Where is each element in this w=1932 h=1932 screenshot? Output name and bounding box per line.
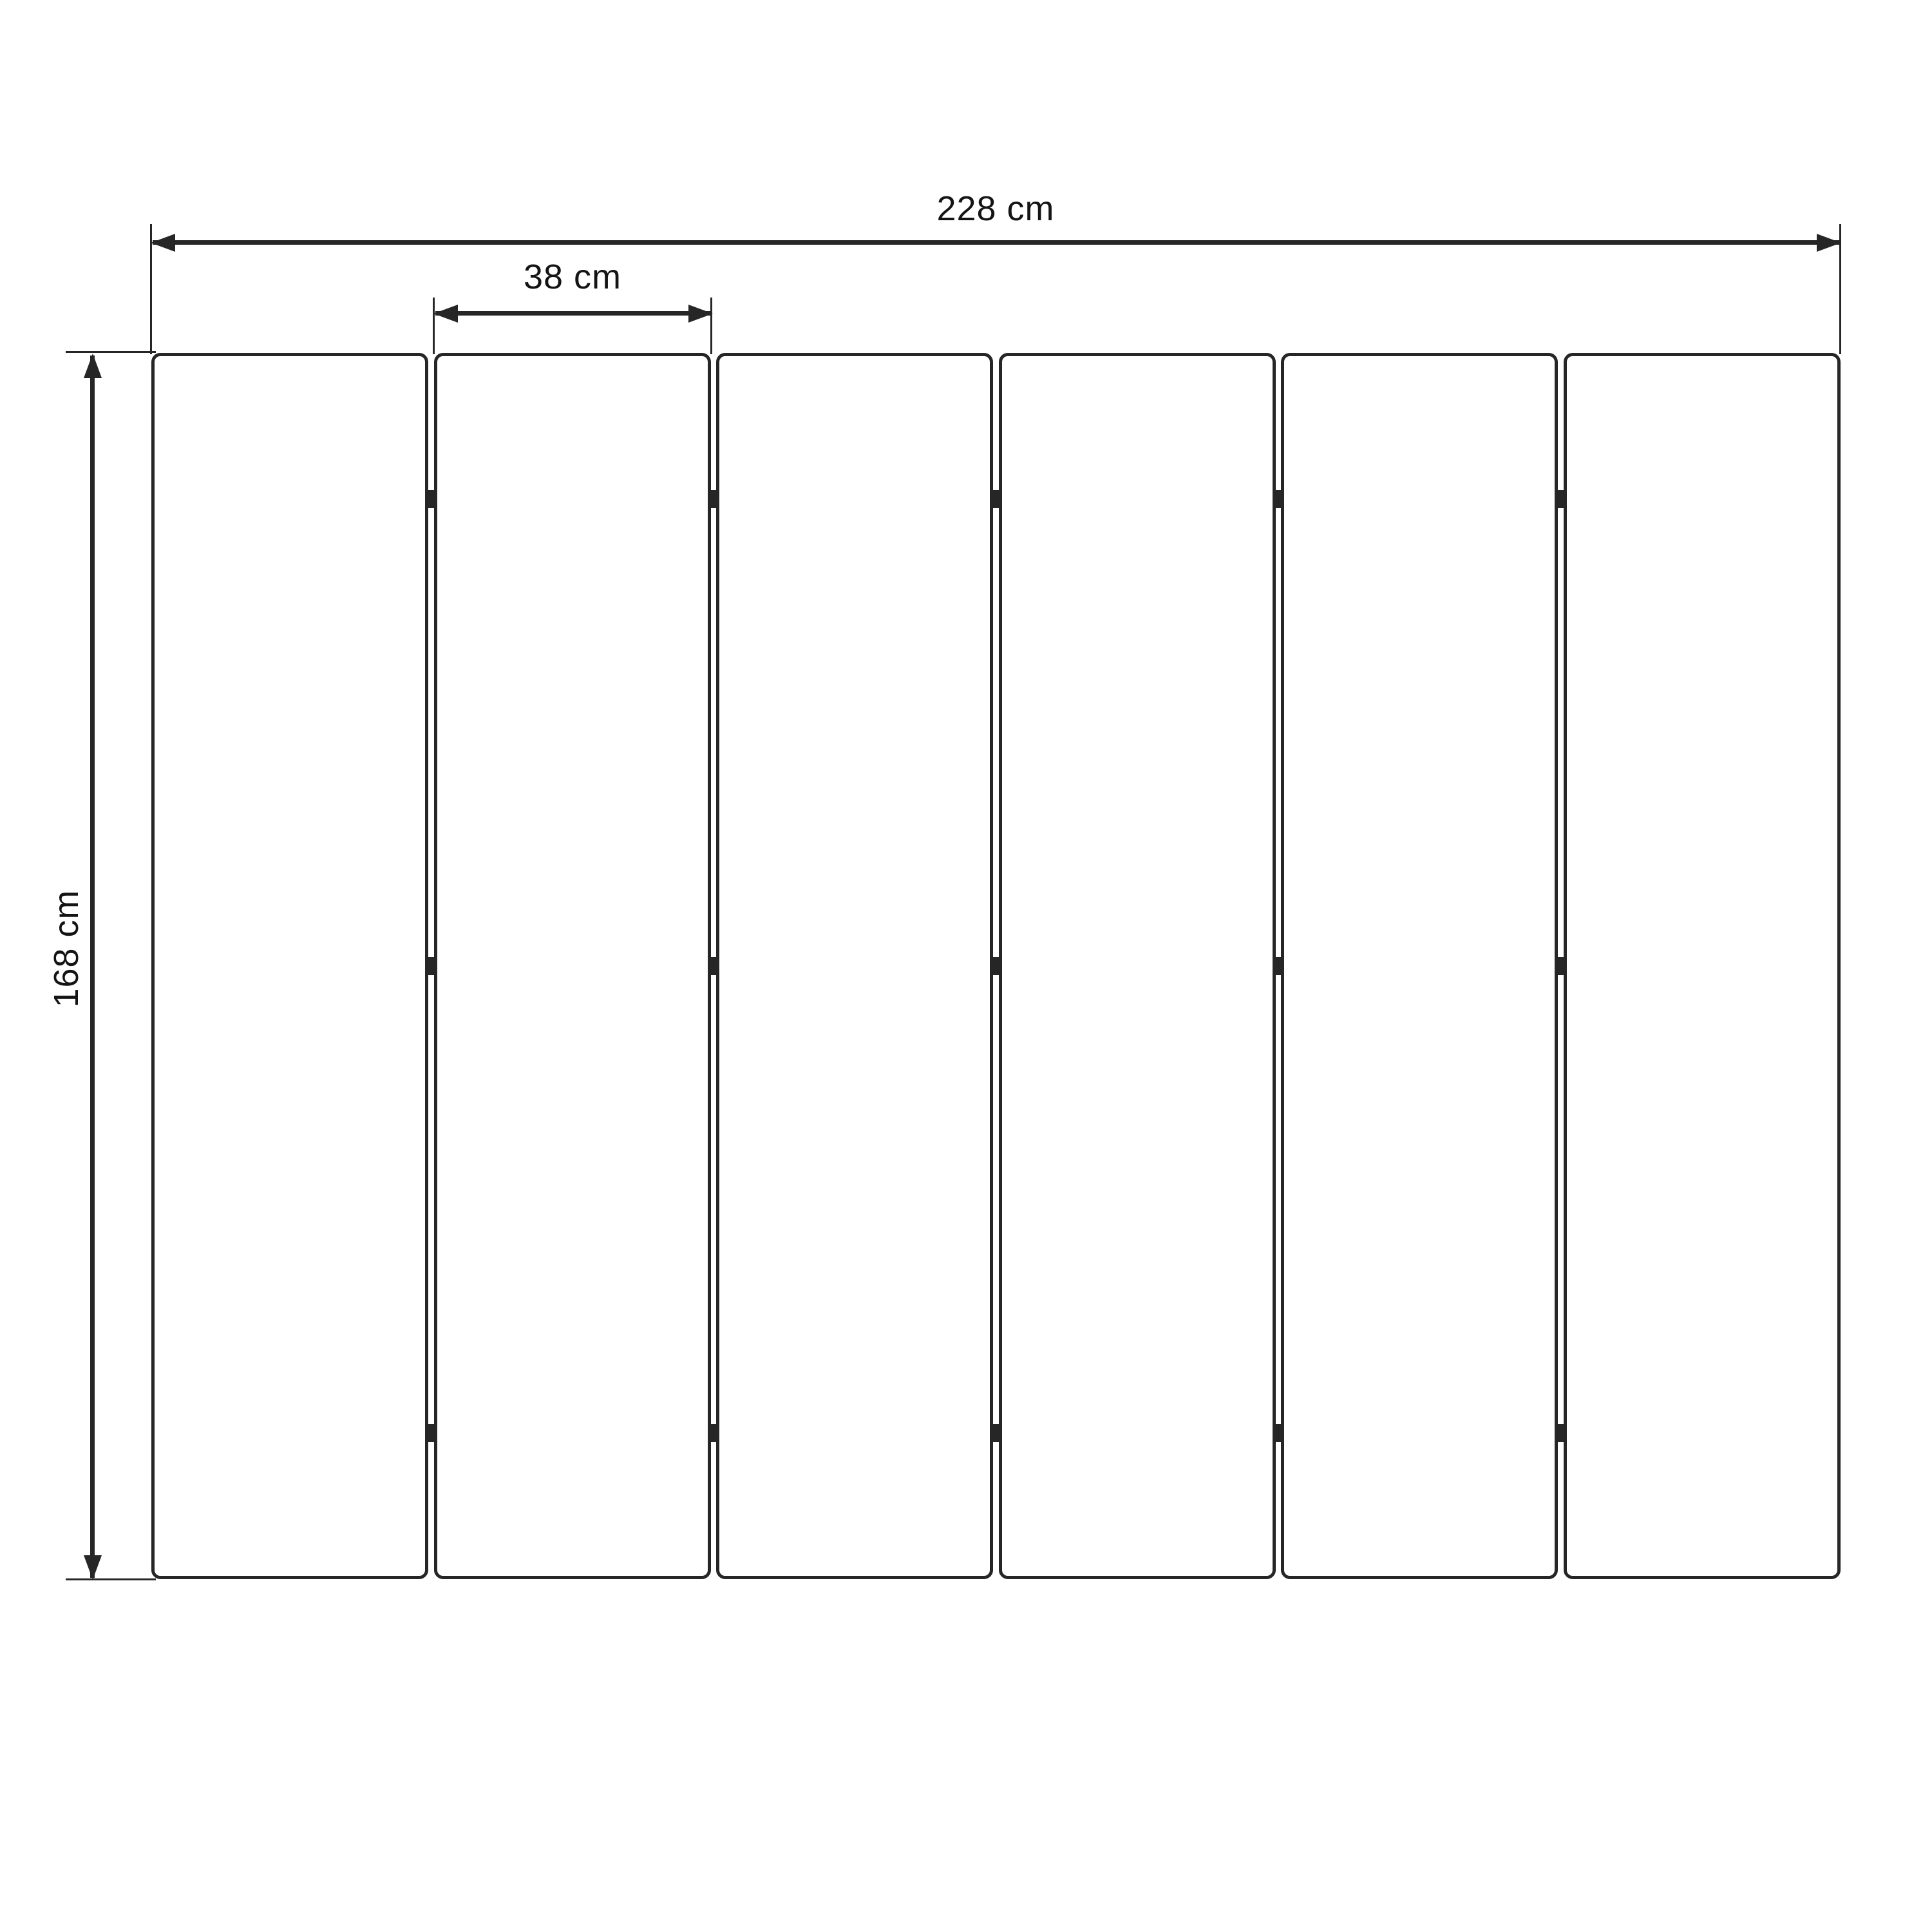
panel bbox=[151, 353, 428, 1579]
hinge-mark bbox=[991, 490, 1001, 508]
hinge-mark bbox=[708, 957, 719, 975]
panel bbox=[434, 353, 711, 1579]
hinge-mark bbox=[1556, 1424, 1566, 1442]
height-extension-line-top bbox=[66, 351, 156, 353]
hinge-mark bbox=[991, 1424, 1001, 1442]
height-extension-line-bottom bbox=[66, 1578, 156, 1580]
panel bbox=[1281, 353, 1558, 1579]
arrow-left-icon bbox=[433, 305, 458, 323]
hinge-mark bbox=[1273, 1424, 1283, 1442]
hinge-mark bbox=[1273, 957, 1283, 975]
panel bbox=[716, 353, 993, 1579]
hinge-mark bbox=[1273, 490, 1283, 508]
arrow-right-icon bbox=[1817, 234, 1841, 252]
arrow-left-icon bbox=[151, 234, 175, 252]
hinge-mark bbox=[426, 957, 436, 975]
arrow-right-icon bbox=[688, 305, 713, 323]
panel-layout-diagram: 228 cm 38 cm 168 cm bbox=[0, 0, 1932, 1932]
panels-row bbox=[151, 353, 1841, 1579]
arrow-down-icon bbox=[84, 1555, 102, 1580]
hinge-mark bbox=[708, 490, 719, 508]
hinge-mark bbox=[1556, 490, 1566, 508]
hinge-mark bbox=[1556, 957, 1566, 975]
total-width-label: 228 cm bbox=[867, 191, 1124, 227]
total-width-dimension-line bbox=[153, 240, 1839, 245]
hinge-mark bbox=[426, 1424, 436, 1442]
arrow-up-icon bbox=[84, 354, 102, 378]
panel bbox=[999, 353, 1276, 1579]
panel-width-label: 38 cm bbox=[476, 259, 669, 295]
hinge-mark bbox=[708, 1424, 719, 1442]
panel-width-dimension-line bbox=[435, 311, 711, 316]
hinge-mark bbox=[426, 490, 436, 508]
hinge-mark bbox=[991, 957, 1001, 975]
panel bbox=[1564, 353, 1841, 1579]
height-dimension-line bbox=[90, 355, 95, 1578]
